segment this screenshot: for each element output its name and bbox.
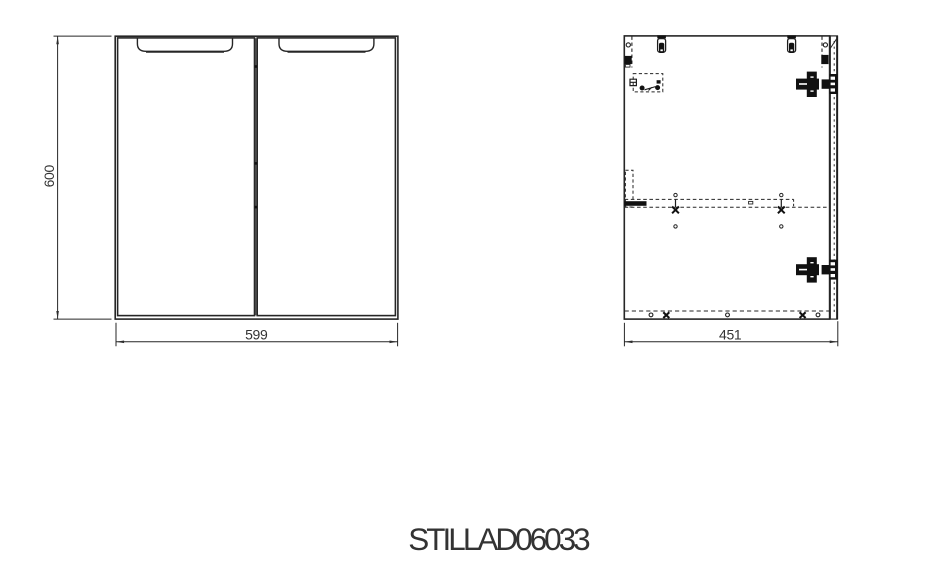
- svg-text:600: 600: [41, 164, 57, 187]
- svg-text:STILLAD06033: STILLAD06033: [408, 521, 590, 557]
- svg-text:451: 451: [719, 327, 742, 343]
- svg-text:599: 599: [245, 327, 268, 343]
